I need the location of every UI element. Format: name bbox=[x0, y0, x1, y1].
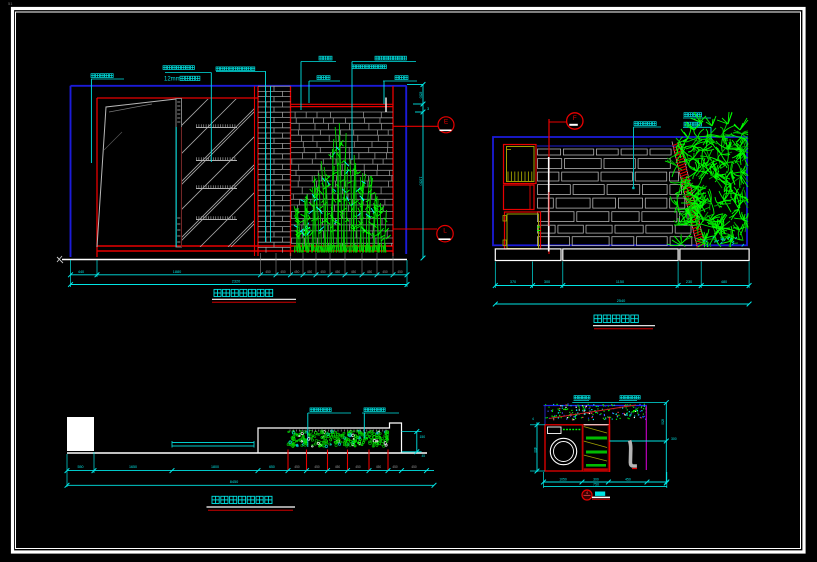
svg-text:51: 51 bbox=[8, 1, 13, 6]
svg-text:150: 150 bbox=[420, 435, 426, 439]
svg-text:450: 450 bbox=[320, 270, 326, 274]
svg-text:1650: 1650 bbox=[129, 465, 137, 469]
svg-text:450: 450 bbox=[392, 465, 398, 469]
svg-text:750: 750 bbox=[593, 483, 599, 487]
svg-text:450: 450 bbox=[294, 465, 300, 469]
svg-text:440: 440 bbox=[78, 270, 84, 274]
svg-text:450: 450 bbox=[376, 465, 382, 469]
svg-text:F: F bbox=[573, 115, 577, 122]
svg-text:1800: 1800 bbox=[211, 465, 219, 469]
svg-text:450: 450 bbox=[397, 270, 403, 274]
svg-text:300: 300 bbox=[593, 478, 599, 482]
svg-text:2540: 2540 bbox=[617, 299, 625, 303]
svg-text:45: 45 bbox=[422, 454, 426, 458]
svg-text:450: 450 bbox=[280, 270, 286, 274]
svg-text:450: 450 bbox=[382, 270, 388, 274]
svg-text:450: 450 bbox=[355, 465, 361, 469]
svg-text:450: 450 bbox=[533, 447, 537, 453]
svg-text:450: 450 bbox=[351, 270, 357, 274]
svg-text:850: 850 bbox=[419, 92, 424, 99]
svg-text:850: 850 bbox=[661, 419, 665, 425]
svg-text:E: E bbox=[444, 119, 449, 126]
svg-text:450: 450 bbox=[411, 465, 417, 469]
svg-text:450: 450 bbox=[625, 478, 631, 482]
svg-text:4: 4 bbox=[532, 417, 534, 421]
svg-text:450: 450 bbox=[307, 270, 313, 274]
svg-text:1880: 1880 bbox=[173, 270, 181, 274]
svg-text:550: 550 bbox=[78, 465, 84, 469]
svg-text:12mm: 12mm bbox=[164, 77, 181, 83]
svg-text:300: 300 bbox=[544, 280, 550, 284]
svg-text:650: 650 bbox=[269, 465, 275, 469]
svg-text:480: 480 bbox=[721, 280, 727, 284]
svg-text:450: 450 bbox=[294, 270, 300, 274]
svg-text:1050: 1050 bbox=[559, 478, 567, 482]
svg-text:450: 450 bbox=[314, 465, 320, 469]
svg-text:2320: 2320 bbox=[232, 280, 240, 284]
svg-text:300: 300 bbox=[671, 437, 677, 441]
svg-text:1150: 1150 bbox=[616, 280, 624, 284]
svg-text:1950: 1950 bbox=[419, 177, 424, 187]
svg-text:450: 450 bbox=[335, 465, 341, 469]
svg-text:230: 230 bbox=[686, 280, 692, 284]
svg-text:370: 370 bbox=[510, 280, 516, 284]
svg-text:450: 450 bbox=[367, 270, 373, 274]
svg-text:8450: 8450 bbox=[230, 480, 238, 484]
svg-text:450: 450 bbox=[265, 270, 271, 274]
svg-text:L: L bbox=[443, 228, 447, 235]
svg-text:450: 450 bbox=[335, 270, 341, 274]
